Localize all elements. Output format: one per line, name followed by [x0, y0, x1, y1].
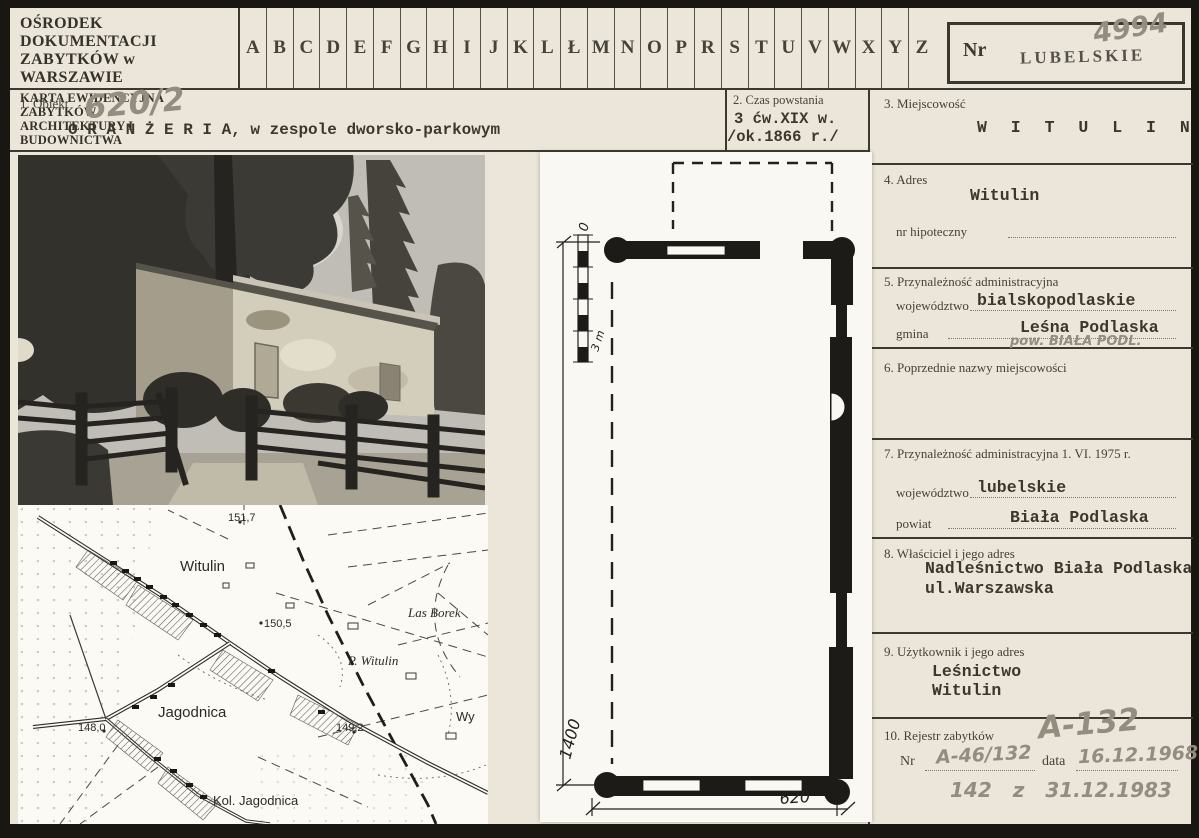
map-label-jagodnica: Jagodnica [158, 704, 227, 721]
org-name-line2: ZABYTKÓW w WARSZAWIE [20, 51, 234, 87]
alphabet-cell-x: X [856, 8, 883, 88]
alphabet-cell-t: T [749, 8, 776, 88]
alphabet-cell-r: R [695, 8, 722, 88]
alphabet-index-strip: A B C D E F G H I J K L Ł M N O P R S T … [240, 8, 935, 88]
field10-pencil-note: 142 z 31.12.1983 [950, 778, 1172, 802]
field4-hipoteczny-label: nr hipoteczny [896, 224, 967, 240]
field5-woj-label: województwo [896, 298, 969, 314]
right-column: 3. Miejscowość W I T U L I N 4. Adres Wi… [868, 88, 1193, 824]
field2-date-line2: /ok.1866 r./ [727, 128, 839, 146]
field3-value: W I T U L I N [977, 118, 1197, 137]
floor-plan-sheet: 1400 620 0 3 m [540, 152, 872, 822]
plan-dashed-outline [673, 163, 832, 238]
field10-date-value: 16.12.1968 [1078, 742, 1199, 768]
alphabet-cell-b: B [267, 8, 294, 88]
field9-line1: Leśnictwo [932, 662, 1021, 681]
field-separator [870, 717, 1193, 719]
building-photo [18, 155, 485, 505]
alphabet-cell-m: M [588, 8, 615, 88]
field-separator [870, 438, 1193, 440]
map-elevation-1492: 149,2 [336, 722, 364, 734]
alphabet-cell-z: Z [909, 8, 935, 88]
dotted-line [970, 496, 1176, 498]
field1-label: 1. Obiekt [20, 96, 68, 112]
alphabet-cell-y: Y [882, 8, 909, 88]
alphabet-cell-k: K [508, 8, 535, 88]
field2-box: 2. Czas powstania 3 ćw.XIX w. /ok.1866 r… [725, 88, 867, 150]
topographic-map: " [18, 505, 488, 824]
field5-woj-value: bialskopodlaskie [977, 291, 1135, 310]
alphabet-cell-c: C [294, 8, 321, 88]
alphabet-cell-f: F [374, 8, 401, 88]
field10-nr-label: Nr [900, 754, 915, 770]
field8-line1: Nadleśnictwo Biała Podlaska [925, 559, 1192, 578]
field9-label: 9. Użytkownik i jego adres [884, 644, 1024, 660]
field9-line2: Witulin [932, 681, 1001, 700]
field-separator [870, 267, 1193, 269]
alphabet-cell-a: A [240, 8, 267, 88]
field8-line2: ul.Warszawska [925, 579, 1054, 598]
alphabet-cell-u: U [775, 8, 802, 88]
org-name-line1: OŚRODEK DOKUMENTACJI [20, 15, 234, 51]
map-elevation-1480: 148,0 [78, 722, 106, 734]
card-paper: OŚRODEK DOKUMENTACJI ZABYTKÓW w WARSZAWI… [10, 8, 1191, 824]
card-number-box: Nr LUBELSKIE 4994 [947, 22, 1185, 84]
plan-scale-zero: 0 [576, 221, 593, 233]
alphabet-cell-l: L [534, 8, 561, 88]
field7-woj-value: lubelskie [977, 478, 1066, 497]
alphabet-cell-j: J [481, 8, 508, 88]
dotted-line [948, 527, 1176, 529]
dotted-line [1076, 769, 1178, 771]
plan-dimension-lines [556, 236, 855, 816]
map-elevation-1505: 150,5 [264, 618, 292, 630]
alphabet-cell-o: O [641, 8, 668, 88]
field3-label: 3. Miejscowość [884, 96, 966, 112]
grass-path [168, 463, 318, 505]
field10-register-handwritten: A-132 [1037, 702, 1141, 747]
alphabet-cell-h: H [427, 8, 454, 88]
field6-label: 6. Poprzednie nazwy miejscowości [884, 360, 1067, 376]
field7-powiat-value: Biała Podlaska [1010, 508, 1149, 527]
plan-dimension-height: 1400 [556, 717, 585, 761]
plan-scale-max: 3 m [588, 329, 607, 353]
field5-label: 5. Przynależność administracyjna [884, 274, 1058, 290]
alphabet-cell-n: N [615, 8, 642, 88]
field-separator [870, 632, 1193, 634]
alphabet-cell-g: G [401, 8, 428, 88]
alphabet-cell-i: I [454, 8, 481, 88]
map-illustration: " [18, 505, 488, 824]
field10-date-label: data [1042, 754, 1065, 770]
alphabet-cell-e: E [347, 8, 374, 88]
map-elevation-1517: 151,7 [228, 512, 256, 524]
alphabet-cell-s: S [722, 8, 749, 88]
alphabet-cell-l-stroke: Ł [561, 8, 588, 88]
field4-value: Witulin [970, 186, 1039, 205]
field4-label: 4. Adres [884, 172, 927, 188]
floor-plan-drawing: 1400 620 0 3 m [540, 152, 872, 822]
dotted-line [970, 309, 1176, 311]
photo-illustration [18, 155, 485, 505]
map-label-las-borek: Las Borek [407, 605, 461, 620]
alphabet-cell-p: P [668, 8, 695, 88]
region-stamp: LUBELSKIE [1020, 45, 1146, 68]
field5-gmina-label: gmina [896, 326, 929, 342]
object-name: O R A N Ż E R I A, w zespole dworsko-par… [68, 121, 500, 139]
field7-label: 7. Przynależność administracyjna 1. VI. … [884, 446, 1131, 462]
nr-label: Nr [963, 39, 986, 62]
field5-pencil-note: pow. BIAŁA PODL. [1010, 334, 1141, 349]
alphabet-cell-w: W [829, 8, 856, 88]
map-label-witulin: Witulin [180, 558, 225, 575]
organization-box: OŚRODEK DOKUMENTACJI ZABYTKÓW w WARSZAWI… [10, 8, 240, 88]
dotted-line [925, 769, 1035, 771]
card-number-handwritten: 4994 [1091, 7, 1170, 49]
field2-label: 2. Czas powstania [733, 93, 824, 108]
card-header: OŚRODEK DOKUMENTACJI ZABYTKÓW w WARSZAWI… [10, 8, 1191, 90]
plan-openings [643, 246, 845, 791]
object-row: 1. Obiekt 620/2 O R A N Ż E R I A, w zes… [10, 88, 868, 152]
field10-nr-value: A-46/132 [935, 742, 1032, 769]
alphabet-cell-d: D [320, 8, 347, 88]
map-label-kol-jagodnica: Kol. Jagodnica [213, 793, 299, 808]
map-label-p-witulin: P. Witulin [347, 653, 398, 668]
dotted-line [1008, 236, 1176, 238]
field7-woj-label: województwo [896, 485, 969, 501]
plan-dimension-width: 620 [779, 787, 811, 808]
field-separator [870, 537, 1193, 539]
plan-walls [594, 237, 855, 805]
alphabet-cell-v: V [802, 8, 829, 88]
scanned-heritage-card: OŚRODEK DOKUMENTACJI ZABYTKÓW w WARSZAWI… [0, 0, 1199, 838]
object-number-handwritten: 620/2 [83, 80, 187, 127]
field7-powiat-label: powiat [896, 516, 931, 532]
map-label-wy: Wy [456, 709, 475, 724]
field10-label: 10. Rejestr zabytków [884, 728, 994, 744]
field2-date-line1: 3 ćw.XIX w. [734, 110, 836, 128]
field-separator [870, 163, 1193, 165]
